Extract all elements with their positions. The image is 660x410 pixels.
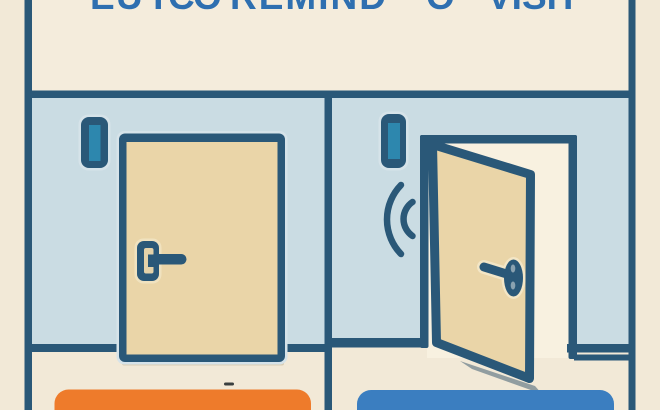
svg-text:O: O: [193, 0, 222, 17]
svg-text:VISIT: VISIT: [487, 0, 580, 17]
svg-text:REMIND: REMIND: [230, 0, 388, 17]
svg-text:O: O: [426, 0, 455, 17]
svg-text:T: T: [147, 0, 170, 17]
svg-text:U: U: [116, 0, 143, 17]
svg-text:C: C: [168, 0, 195, 17]
svg-text:E: E: [90, 0, 115, 17]
